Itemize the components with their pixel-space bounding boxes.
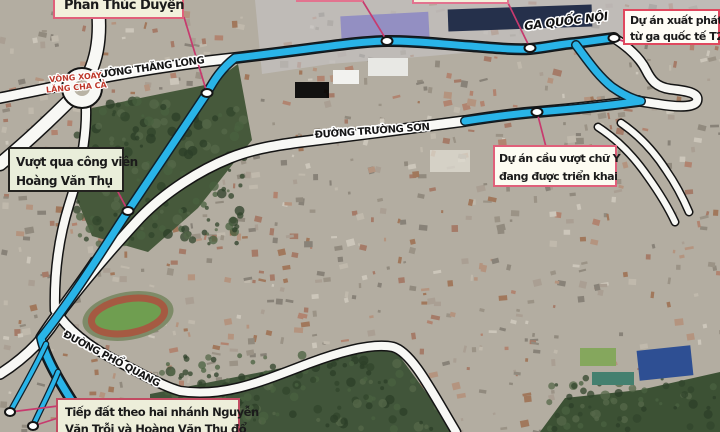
annotation-park-crossing: Vượt qua công viên Hoàng Văn Thụ	[8, 147, 124, 192]
route-marker-park	[123, 207, 134, 215]
annotation-text: Phan Thúc Duyện	[64, 0, 184, 14]
map-canvas: ĐƯỜNG THĂNG LONG ĐƯỜNG TRƯỜNG SƠN ĐƯỜNG …	[0, 0, 720, 432]
route-marker-domestic	[525, 44, 536, 52]
route-marker-t2	[609, 34, 620, 42]
annotation-phan-thuc-duyen: Phan Thúc Duyện	[53, 0, 184, 19]
route-marker-landing-1	[5, 408, 15, 416]
annotation-cutoff-box-1	[296, 0, 363, 2]
route-marker-y-bridge	[532, 108, 543, 116]
annotation-landing-branches: Tiếp đất theo hai nhánh Nguyễn Văn Trỗi …	[56, 398, 240, 432]
annotation-cutoff-box-2	[412, 0, 509, 4]
blue-roof-building	[637, 345, 694, 380]
route-marker-landing-2	[28, 422, 38, 430]
annotated-satellite-map: ĐƯỜNG THĂNG LONG ĐƯỜNG TRƯỜNG SƠN ĐƯỜNG …	[0, 0, 720, 432]
route-marker-phan-thuc-duyen	[202, 89, 213, 97]
annotation-y-bridge: Dự án cầu vượt chữ Y đang được triển kha…	[493, 145, 617, 187]
annotation-project-start: Dự án xuất phát từ ga quốc tế T2	[623, 9, 720, 45]
route-marker-mid	[382, 37, 393, 45]
